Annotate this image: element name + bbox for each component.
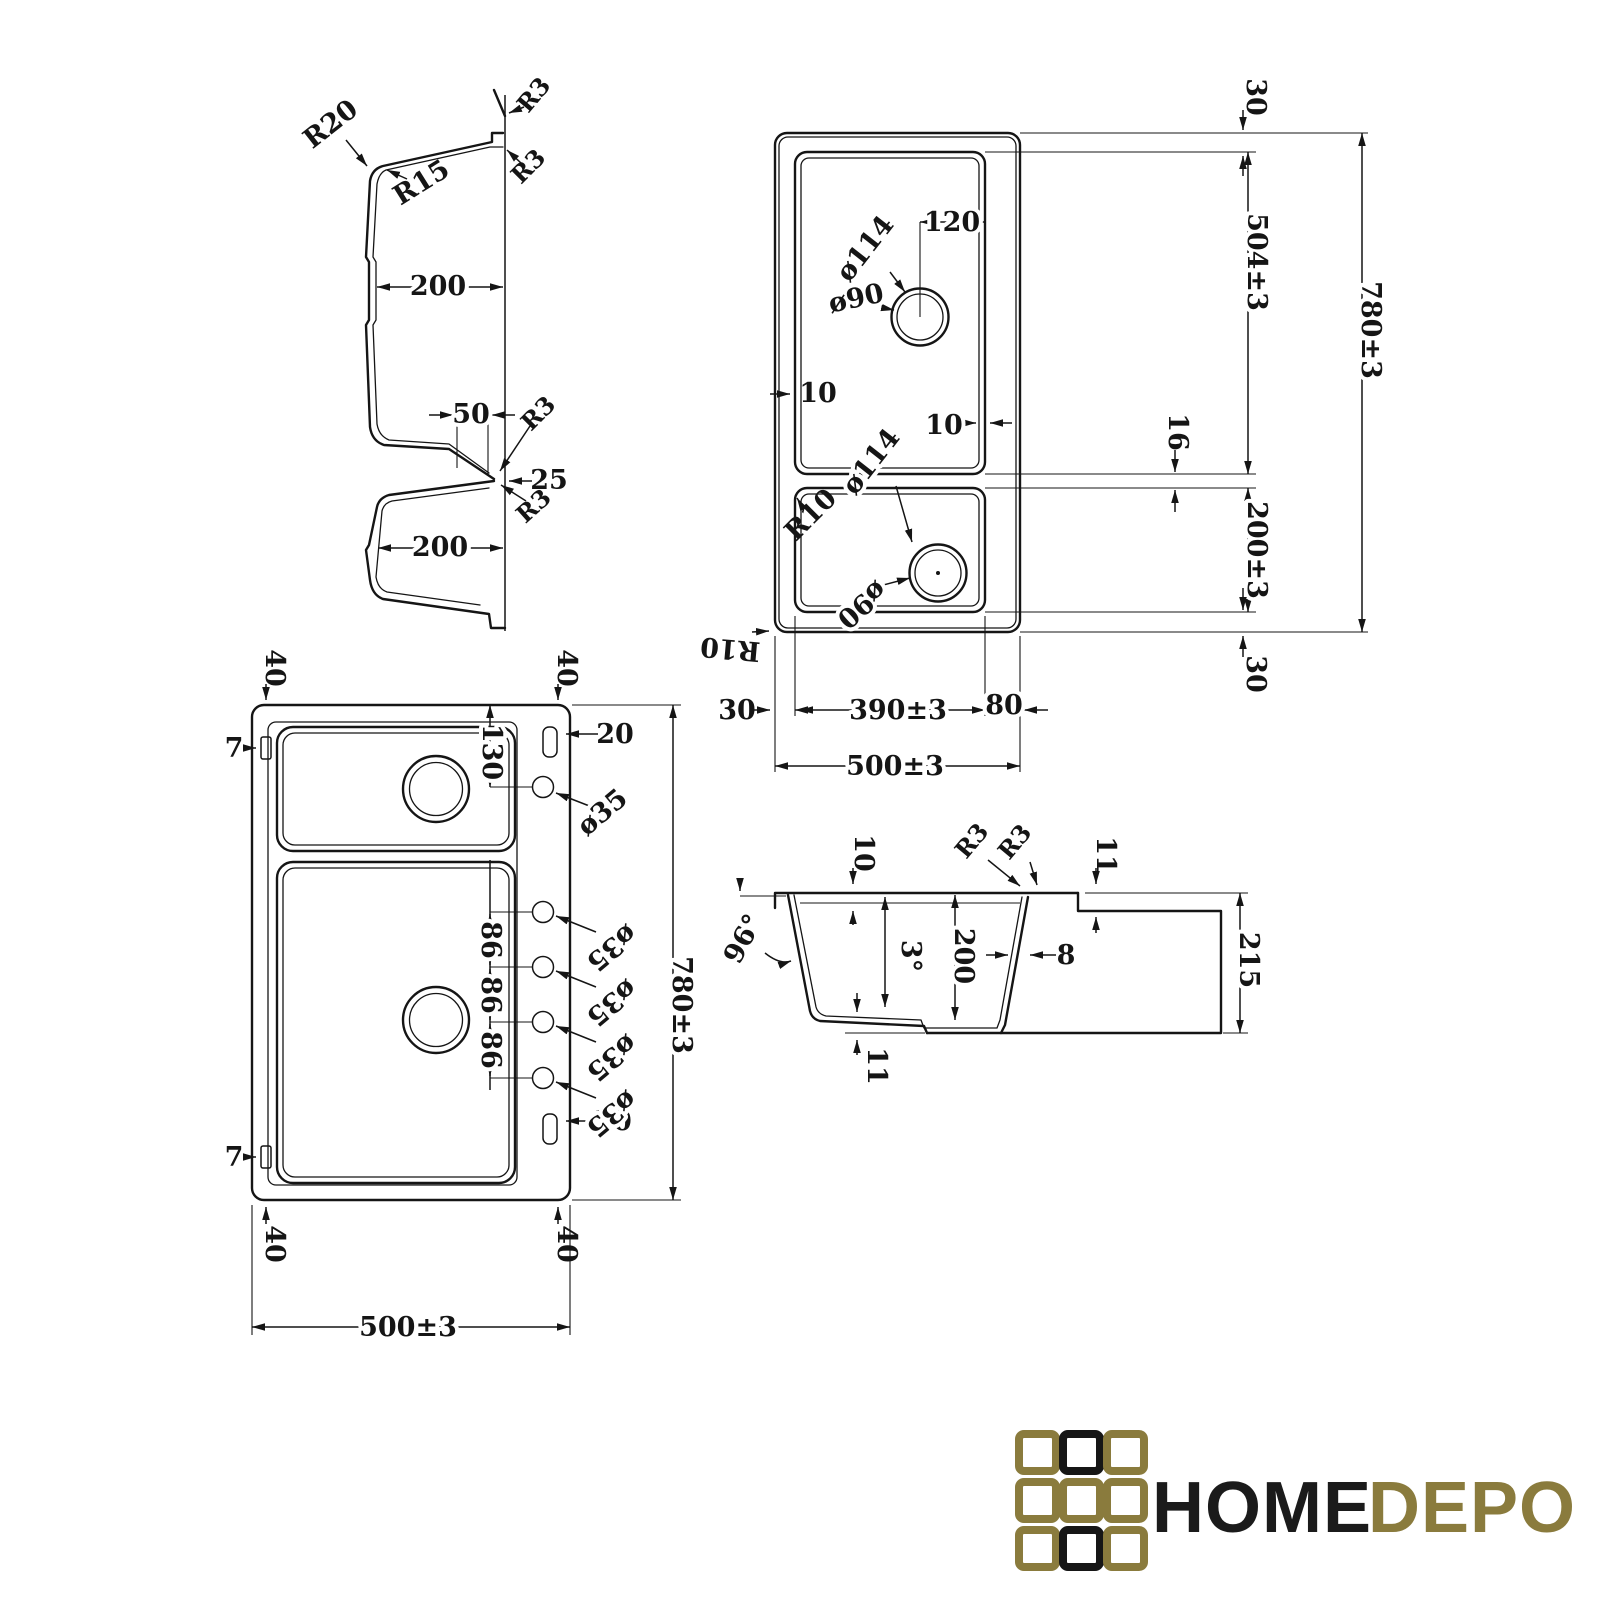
large-bowl [277,862,515,1183]
bowl-right-wall-outer [1001,897,1028,1033]
dim-bowl-depth: 200 [948,928,979,984]
dia-label-tap-4: ø35 [580,1028,643,1087]
dim-overall-height: 215 [1233,932,1264,988]
dim-tap-pitch-2: 86 [475,976,506,1014]
logo-grid-square [1107,1530,1144,1567]
radius-label-r3: R3 [515,390,561,436]
leader-line [556,1082,596,1098]
dim-second-bowl-length: 200±3 [1241,501,1272,599]
plan-underside-view: 30 504±3 780±3 120 ø114 ø90 10 10 16 ø11… [699,78,1386,782]
tap-hole-3 [533,957,554,978]
tap-hole-2 [533,902,554,923]
dim-clip-top: 7 [225,733,244,764]
angle-label-wall: 96° [718,909,769,969]
dim-clip-bottom: 7 [225,1142,244,1173]
deck-slot-bottom [543,1114,557,1144]
dim-bottom-thickness: 11 [861,1047,892,1085]
logo-grid-square [1019,1434,1056,1471]
leader-line [890,272,905,292]
radius-label-r10-bowl: R10 [779,483,843,547]
tap-hole-5 [533,1068,554,1089]
logo-text-depo: DEPO [1368,1468,1576,1548]
dim-overall-length: 780±3 [666,956,697,1054]
dim-left-margin: 30 [718,695,756,726]
large-bowl-drain-outer [403,987,469,1053]
drain-center-mark [936,571,940,575]
dim-bottom-margin: 30 [1240,655,1271,693]
clip-slot-bottom [261,1146,271,1168]
leader-line [1030,862,1037,885]
dim-overall-length: 780±3 [1355,281,1386,379]
radius-label-r3-inner: R3 [949,817,995,864]
logo-grid-square [1063,1482,1100,1519]
drawing-sheet: 200 50 25 R20 R15 R3 R3 R3 R3 200 [0,0,1600,1600]
leader-line [556,971,596,987]
dim-corner-tl: 40 [259,649,290,687]
dim-wall-right: 10 [925,410,963,441]
top-surface-line [775,893,1078,908]
dim-corner-tr: 40 [551,649,582,687]
dia-label-tap-5: ø35 [580,1084,643,1143]
leader-line [988,860,1020,886]
leader-line [752,631,769,632]
dia-label-main-drain-outer: ø114 [830,210,900,288]
radius-label-r3: R3 [505,143,551,189]
small-bowl-drain-outer [403,756,469,822]
dim-wall-thickness: 8 [1057,940,1076,971]
dim-overall-width: 500±3 [846,751,944,782]
dim-drain-offset: 120 [924,207,980,238]
dia-label-tap-3: ø35 [580,973,643,1032]
dim-wall-left: 10 [799,378,837,409]
radius-label-r3-outer: R3 [992,818,1038,865]
deck-slot-top [543,727,557,757]
dim-corner-bl: 40 [259,1225,290,1263]
logo-grid-square [1107,1482,1144,1519]
dim-overall-width: 500±3 [359,1312,457,1343]
dia-label-second-drain-inner: ø90 [831,574,893,634]
dim-bowl-width: 390±3 [849,695,947,726]
dim-ledge-step: 11 [1090,836,1121,874]
profile-section-view: 200 50 25 R20 R15 R3 R3 R3 R3 200 [298,71,568,631]
clip-slot-top [261,737,271,759]
leader-line [556,916,596,932]
radius-label-r20: R20 [298,94,364,155]
leader-line [765,953,791,962]
large-bowl-inner [283,868,509,1177]
dim-tap-pitch-1: 86 [475,921,506,959]
logo-grid-square [1063,1530,1100,1567]
dim-deck-width: 80 [985,690,1023,721]
dim-top-margin: 30 [1240,78,1271,116]
logo-grid-square [1107,1434,1144,1471]
small-bowl-inner [283,733,509,845]
logo-grid-square [1019,1530,1056,1567]
dim-tap-pitch-3: 86 [475,1031,506,1069]
backsplash-tick [494,90,505,116]
dim-corner-br: 40 [551,1225,582,1263]
angle-label-draft: 3° [895,940,926,972]
plan-top-view: 40 40 40 40 7 7 20 20 130 86 86 86 ø35 [225,649,697,1343]
logo-text-home: HOME [1152,1468,1372,1548]
tap-hole-1 [533,777,554,798]
dim-reveal: 10 [848,834,879,872]
dim-groove-width: 50 [452,399,490,430]
logo-grid-square [1019,1482,1056,1519]
drawing-canvas: 200 50 25 R20 R15 R3 R3 R3 R3 200 [0,0,1600,1600]
leader-line [556,1026,596,1042]
dim-divider-thickness: 16 [1162,413,1193,451]
radius-label-r10-outer: R10 [699,630,761,666]
dia-label-main-drain-inner: ø90 [826,278,887,320]
small-bowl-drain-inner [410,763,463,816]
large-bowl-drain-inner [410,994,463,1047]
dim-tap-offset: 130 [476,724,507,780]
tap-hole-4 [533,1012,554,1033]
dia-label-tap-2: ø35 [580,918,643,977]
logo-grid-square [1063,1434,1100,1471]
logo: HOME DEPO [1019,1434,1576,1567]
dim-main-bowl-length: 504±3 [1241,213,1272,311]
dim-slot-top: 20 [596,719,634,750]
leader-line [346,140,367,166]
dim-upper-bowl-depth: 200 [410,271,466,302]
radius-label-r3: R3 [511,71,557,118]
dia-label-tap-1: ø35 [571,783,634,842]
dim-lower-bowl-depth: 200 [412,532,468,563]
bowl-section-view: 10 96° 3° 200 8 R3 R3 11 215 11 [718,817,1264,1085]
